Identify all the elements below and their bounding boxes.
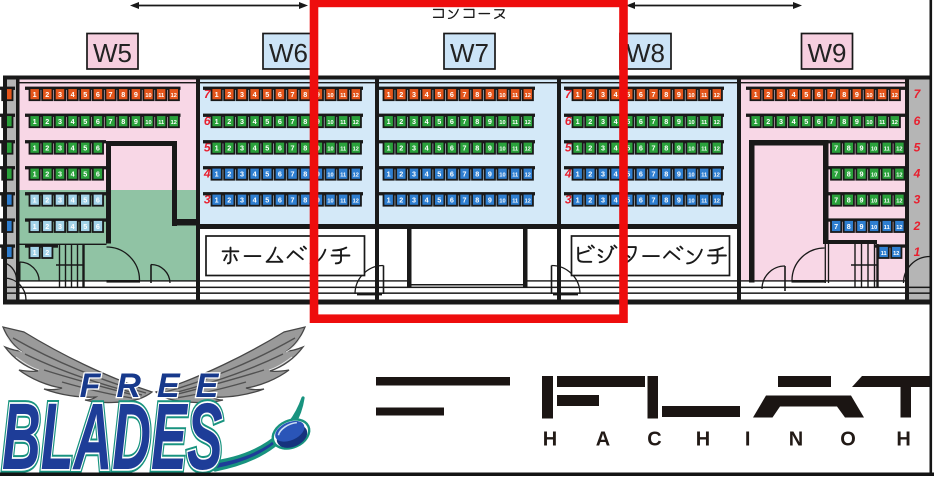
svg-text:4: 4 (425, 117, 429, 126)
svg-text:6: 6 (278, 196, 282, 205)
svg-text:12: 12 (892, 120, 898, 126)
svg-text:12: 12 (714, 93, 720, 99)
svg-text:2: 2 (227, 90, 231, 99)
svg-text:11: 11 (701, 173, 707, 179)
svg-text:7: 7 (463, 117, 467, 126)
svg-text:8: 8 (847, 144, 851, 153)
svg-text:10: 10 (871, 199, 877, 205)
svg-text:4: 4 (425, 144, 429, 153)
svg-text:3: 3 (601, 144, 605, 153)
svg-text:2: 2 (766, 117, 770, 126)
svg-text:4: 4 (71, 170, 75, 179)
svg-text:3: 3 (412, 144, 416, 153)
svg-text:2: 2 (227, 170, 231, 179)
svg-text:I: I (745, 429, 751, 451)
svg-text:1: 1 (215, 144, 219, 153)
svg-text:A: A (596, 429, 610, 451)
svg-text:W9: W9 (808, 38, 847, 68)
svg-text:1: 1 (387, 117, 391, 126)
svg-text:12: 12 (525, 173, 531, 179)
svg-text:3: 3 (601, 196, 605, 205)
svg-text:10: 10 (866, 93, 872, 99)
svg-text:4: 4 (913, 167, 921, 181)
svg-text:4: 4 (614, 144, 618, 153)
svg-text:6: 6 (96, 170, 100, 179)
svg-text:4: 4 (792, 117, 796, 126)
svg-text:10: 10 (688, 199, 694, 205)
svg-text:3: 3 (601, 117, 605, 126)
svg-text:8: 8 (121, 117, 125, 126)
svg-text:12: 12 (714, 120, 720, 126)
svg-text:6: 6 (914, 114, 921, 128)
svg-text:11: 11 (884, 225, 890, 231)
svg-text:12: 12 (171, 120, 177, 126)
svg-text:10: 10 (327, 173, 333, 179)
svg-text:1: 1 (33, 144, 37, 153)
svg-text:9: 9 (488, 196, 492, 205)
svg-text:12: 12 (896, 225, 902, 231)
svg-text:4: 4 (792, 90, 796, 99)
svg-text:11: 11 (884, 173, 890, 179)
svg-text:8: 8 (664, 170, 668, 179)
svg-text:2: 2 (227, 196, 231, 205)
svg-text:10: 10 (327, 199, 333, 205)
svg-text:12: 12 (896, 173, 902, 179)
svg-text:10: 10 (866, 120, 872, 126)
svg-text:3: 3 (58, 170, 62, 179)
svg-text:5: 5 (804, 90, 808, 99)
svg-text:6: 6 (639, 144, 643, 153)
svg-text:9: 9 (488, 144, 492, 153)
svg-text:2: 2 (399, 90, 403, 99)
svg-text:5: 5 (437, 90, 441, 99)
svg-text:5: 5 (265, 90, 269, 99)
svg-text:10: 10 (688, 173, 694, 179)
svg-text:3: 3 (58, 117, 62, 126)
svg-text:9: 9 (859, 222, 863, 231)
svg-text:12: 12 (896, 147, 902, 153)
svg-text:5: 5 (914, 141, 921, 155)
svg-text:1: 1 (215, 117, 219, 126)
svg-text:8: 8 (664, 144, 668, 153)
svg-text:11: 11 (512, 199, 518, 205)
svg-text:8: 8 (847, 170, 851, 179)
svg-text:5: 5 (437, 117, 441, 126)
svg-text:6: 6 (278, 170, 282, 179)
svg-text:6: 6 (450, 170, 454, 179)
svg-text:7: 7 (463, 170, 467, 179)
svg-text:6: 6 (96, 117, 100, 126)
svg-text:5: 5 (265, 170, 269, 179)
svg-text:3: 3 (779, 90, 783, 99)
svg-text:7: 7 (291, 170, 295, 179)
svg-text:8: 8 (475, 170, 479, 179)
svg-text:10: 10 (499, 173, 505, 179)
svg-text:3: 3 (412, 170, 416, 179)
svg-text:2: 2 (588, 196, 592, 205)
svg-text:3: 3 (601, 170, 605, 179)
svg-text:12: 12 (353, 93, 359, 99)
svg-text:2: 2 (45, 144, 49, 153)
svg-text:9: 9 (859, 196, 863, 205)
svg-text:12: 12 (714, 173, 720, 179)
svg-text:5: 5 (83, 117, 87, 126)
svg-text:11: 11 (158, 120, 164, 126)
svg-text:2: 2 (399, 170, 403, 179)
svg-text:8: 8 (847, 196, 851, 205)
svg-text:8: 8 (842, 90, 846, 99)
svg-text:1: 1 (576, 117, 580, 126)
svg-text:11: 11 (881, 251, 887, 257)
svg-text:W7: W7 (450, 38, 489, 68)
svg-text:12: 12 (353, 147, 359, 153)
svg-text:10: 10 (327, 120, 333, 126)
svg-text:N: N (789, 429, 803, 451)
svg-text:8: 8 (303, 170, 307, 179)
svg-text:12: 12 (714, 147, 720, 153)
svg-text:6: 6 (450, 90, 454, 99)
svg-text:6: 6 (96, 144, 100, 153)
svg-text:10: 10 (327, 93, 333, 99)
svg-text:6: 6 (278, 90, 282, 99)
svg-text:5: 5 (83, 144, 87, 153)
svg-text:11: 11 (512, 147, 518, 153)
svg-text:10: 10 (145, 120, 151, 126)
svg-text:8: 8 (303, 90, 307, 99)
svg-text:1: 1 (33, 90, 37, 99)
svg-text:2: 2 (45, 222, 49, 231)
svg-text:9: 9 (855, 90, 859, 99)
svg-text:2: 2 (588, 170, 592, 179)
svg-text:H: H (543, 429, 557, 451)
svg-text:4: 4 (71, 117, 75, 126)
svg-text:5: 5 (437, 196, 441, 205)
svg-text:6: 6 (278, 117, 282, 126)
svg-text:11: 11 (701, 199, 707, 205)
svg-text:2: 2 (588, 144, 592, 153)
svg-text:4: 4 (425, 170, 429, 179)
svg-text:3: 3 (412, 117, 416, 126)
svg-text:6: 6 (450, 196, 454, 205)
svg-text:8: 8 (303, 117, 307, 126)
svg-text:3: 3 (779, 117, 783, 126)
svg-text:12: 12 (892, 93, 898, 99)
svg-text:6: 6 (450, 117, 454, 126)
svg-text:6: 6 (639, 90, 643, 99)
svg-text:1: 1 (33, 222, 37, 231)
svg-text:1: 1 (33, 196, 37, 205)
svg-text:7: 7 (463, 90, 467, 99)
svg-text:6: 6 (96, 90, 100, 99)
svg-text:7: 7 (652, 144, 656, 153)
svg-text:W8: W8 (626, 38, 665, 68)
svg-text:W5: W5 (93, 38, 132, 68)
svg-text:1: 1 (33, 248, 37, 257)
svg-text:6: 6 (639, 196, 643, 205)
svg-text:5: 5 (83, 196, 87, 205)
svg-text:7: 7 (830, 90, 834, 99)
svg-text:11: 11 (512, 120, 518, 126)
svg-text:11: 11 (512, 93, 518, 99)
svg-text:4: 4 (614, 196, 618, 205)
svg-text:12: 12 (525, 120, 531, 126)
svg-text:11: 11 (701, 93, 707, 99)
svg-text:2: 2 (399, 196, 403, 205)
svg-text:7: 7 (652, 90, 656, 99)
svg-text:10: 10 (499, 93, 505, 99)
svg-text:3: 3 (240, 170, 244, 179)
svg-text:4: 4 (614, 90, 618, 99)
svg-text:7: 7 (109, 117, 113, 126)
svg-text:2: 2 (913, 219, 921, 233)
svg-text:8: 8 (121, 90, 125, 99)
svg-text:8: 8 (303, 196, 307, 205)
svg-text:8: 8 (664, 196, 668, 205)
svg-text:1: 1 (215, 196, 219, 205)
svg-text:5: 5 (265, 144, 269, 153)
svg-text:11: 11 (340, 93, 346, 99)
svg-text:2: 2 (45, 170, 49, 179)
svg-text:7: 7 (652, 117, 656, 126)
svg-text:11: 11 (512, 173, 518, 179)
svg-text:4: 4 (253, 196, 257, 205)
svg-text:3: 3 (58, 196, 62, 205)
svg-text:4: 4 (71, 196, 75, 205)
svg-text:5: 5 (83, 90, 87, 99)
svg-text:10: 10 (871, 173, 877, 179)
svg-text:2: 2 (588, 90, 592, 99)
svg-text:11: 11 (884, 147, 890, 153)
svg-text:1: 1 (387, 90, 391, 99)
svg-text:7: 7 (291, 90, 295, 99)
svg-text:W6: W6 (269, 38, 308, 68)
svg-text:9: 9 (134, 90, 138, 99)
svg-text:10: 10 (688, 93, 694, 99)
svg-text:3: 3 (58, 144, 62, 153)
svg-text:4: 4 (425, 196, 429, 205)
svg-text:C: C (647, 429, 661, 451)
svg-text:4: 4 (425, 90, 429, 99)
svg-text:8: 8 (475, 196, 479, 205)
svg-text:8: 8 (303, 144, 307, 153)
svg-text:1: 1 (215, 90, 219, 99)
svg-text:9: 9 (488, 170, 492, 179)
svg-text:6: 6 (450, 144, 454, 153)
svg-text:8: 8 (664, 117, 668, 126)
svg-text:7: 7 (291, 117, 295, 126)
svg-text:4: 4 (614, 117, 618, 126)
svg-text:12: 12 (353, 173, 359, 179)
svg-text:9: 9 (488, 90, 492, 99)
svg-text:2: 2 (399, 144, 403, 153)
svg-text:11: 11 (701, 147, 707, 153)
svg-text:7: 7 (652, 170, 656, 179)
svg-text:8: 8 (475, 117, 479, 126)
svg-text:1: 1 (387, 144, 391, 153)
svg-text:9: 9 (134, 117, 138, 126)
svg-text:11: 11 (879, 120, 885, 126)
svg-text:11: 11 (340, 173, 346, 179)
svg-text:10: 10 (145, 93, 151, 99)
svg-text:11: 11 (340, 120, 346, 126)
svg-text:12: 12 (714, 199, 720, 205)
svg-text:2: 2 (227, 144, 231, 153)
svg-text:H: H (696, 429, 710, 451)
svg-text:1: 1 (33, 117, 37, 126)
svg-text:1: 1 (754, 117, 758, 126)
svg-text:4: 4 (71, 144, 75, 153)
svg-text:9: 9 (677, 117, 681, 126)
svg-text:3: 3 (412, 90, 416, 99)
svg-text:12: 12 (525, 199, 531, 205)
svg-text:7: 7 (834, 196, 838, 205)
svg-text:3: 3 (240, 196, 244, 205)
svg-text:1: 1 (576, 170, 580, 179)
svg-text:1: 1 (387, 170, 391, 179)
svg-text:10: 10 (499, 120, 505, 126)
svg-text:10: 10 (688, 147, 694, 153)
svg-text:11: 11 (879, 93, 885, 99)
svg-text:5: 5 (265, 117, 269, 126)
svg-text:11: 11 (158, 93, 164, 99)
svg-text:5: 5 (83, 222, 87, 231)
svg-text:1: 1 (576, 90, 580, 99)
svg-text:1: 1 (576, 144, 580, 153)
svg-text:2: 2 (766, 90, 770, 99)
svg-text:11: 11 (701, 120, 707, 126)
svg-text:1: 1 (576, 196, 580, 205)
svg-text:7: 7 (109, 90, 113, 99)
svg-text:1: 1 (215, 170, 219, 179)
svg-text:7: 7 (834, 170, 838, 179)
svg-text:8: 8 (664, 90, 668, 99)
svg-text:3: 3 (58, 90, 62, 99)
svg-text:12: 12 (353, 120, 359, 126)
svg-text:10: 10 (499, 147, 505, 153)
svg-text:6: 6 (96, 222, 100, 231)
svg-text:5: 5 (437, 144, 441, 153)
svg-text:12: 12 (171, 93, 177, 99)
svg-text:12: 12 (525, 93, 531, 99)
svg-text:6: 6 (817, 90, 821, 99)
svg-text:7: 7 (652, 196, 656, 205)
svg-text:6: 6 (817, 117, 821, 126)
svg-text:3: 3 (914, 193, 921, 207)
svg-text:12: 12 (353, 199, 359, 205)
svg-text:6: 6 (639, 117, 643, 126)
svg-text:2: 2 (399, 117, 403, 126)
svg-text:12: 12 (525, 147, 531, 153)
svg-text:7: 7 (834, 222, 838, 231)
svg-text:9: 9 (677, 196, 681, 205)
svg-text:1: 1 (914, 245, 921, 259)
svg-text:6: 6 (639, 170, 643, 179)
svg-text:3: 3 (412, 196, 416, 205)
svg-text:11: 11 (884, 199, 890, 205)
svg-text:8: 8 (842, 117, 846, 126)
svg-text:5: 5 (265, 196, 269, 205)
svg-text:5: 5 (437, 170, 441, 179)
svg-text:BLADES: BLADES (2, 384, 223, 476)
svg-text:9: 9 (488, 117, 492, 126)
svg-text:4: 4 (71, 90, 75, 99)
svg-text:7: 7 (830, 117, 834, 126)
svg-text:9: 9 (677, 144, 681, 153)
svg-text:2: 2 (45, 196, 49, 205)
svg-text:4: 4 (614, 170, 618, 179)
svg-text:3: 3 (240, 117, 244, 126)
svg-text:4: 4 (253, 117, 257, 126)
svg-text:7: 7 (463, 144, 467, 153)
svg-text:6: 6 (96, 196, 100, 205)
svg-text:7: 7 (463, 196, 467, 205)
svg-text:5: 5 (83, 170, 87, 179)
svg-text:2: 2 (227, 117, 231, 126)
svg-text:12: 12 (893, 251, 899, 257)
svg-text:9: 9 (859, 170, 863, 179)
svg-text:10: 10 (688, 120, 694, 126)
svg-text:H: H (896, 429, 910, 451)
svg-text:8: 8 (475, 90, 479, 99)
svg-text:5: 5 (804, 117, 808, 126)
svg-text:2: 2 (588, 117, 592, 126)
svg-text:9: 9 (859, 144, 863, 153)
svg-text:11: 11 (340, 199, 346, 205)
svg-text:10: 10 (499, 199, 505, 205)
svg-text:4: 4 (71, 222, 75, 231)
svg-text:6: 6 (278, 144, 282, 153)
svg-text:4: 4 (253, 170, 257, 179)
svg-text:10: 10 (327, 147, 333, 153)
svg-text:4: 4 (253, 144, 257, 153)
svg-text:2: 2 (45, 90, 49, 99)
svg-text:2: 2 (45, 117, 49, 126)
svg-text:7: 7 (291, 144, 295, 153)
svg-text:11: 11 (340, 147, 346, 153)
svg-text:12: 12 (896, 199, 902, 205)
svg-text:3: 3 (58, 222, 62, 231)
svg-text:O: O (840, 429, 856, 451)
svg-text:1: 1 (387, 196, 391, 205)
svg-text:7: 7 (834, 144, 838, 153)
svg-text:1: 1 (33, 170, 37, 179)
svg-text:2: 2 (45, 248, 49, 257)
svg-text:8: 8 (475, 144, 479, 153)
svg-text:3: 3 (240, 144, 244, 153)
svg-text:1: 1 (754, 90, 758, 99)
svg-text:7: 7 (291, 196, 295, 205)
svg-text:10: 10 (871, 147, 877, 153)
svg-text:9: 9 (677, 90, 681, 99)
svg-text:3: 3 (240, 90, 244, 99)
svg-text:9: 9 (677, 170, 681, 179)
svg-text:3: 3 (601, 90, 605, 99)
svg-text:9: 9 (855, 117, 859, 126)
svg-text:4: 4 (253, 90, 257, 99)
svg-text:8: 8 (847, 222, 851, 231)
svg-text:10: 10 (871, 225, 877, 231)
